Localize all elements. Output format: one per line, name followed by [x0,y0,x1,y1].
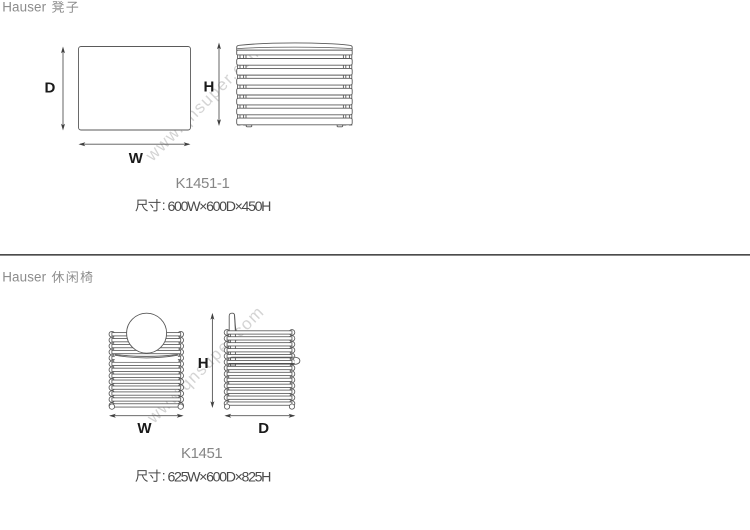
svg-text::: : [162,197,166,213]
svg-text:H: H [204,79,215,96]
svg-text:D: D [258,420,269,437]
svg-text:D: D [45,80,56,97]
svg-text:600W×600D×450H: 600W×600D×450H [168,199,272,215]
svg-text:K1451: K1451 [181,445,222,462]
svg-text:Hauser: Hauser [2,0,46,15]
svg-text:K1451-1: K1451-1 [176,175,230,192]
svg-text::: : [162,467,166,483]
svg-text:Hauser: Hauser [2,270,46,285]
svg-text:W: W [137,420,152,437]
svg-text:H: H [198,355,209,372]
svg-text:625W×600D×825H: 625W×600D×825H [168,469,272,485]
svg-text:W: W [129,150,144,167]
